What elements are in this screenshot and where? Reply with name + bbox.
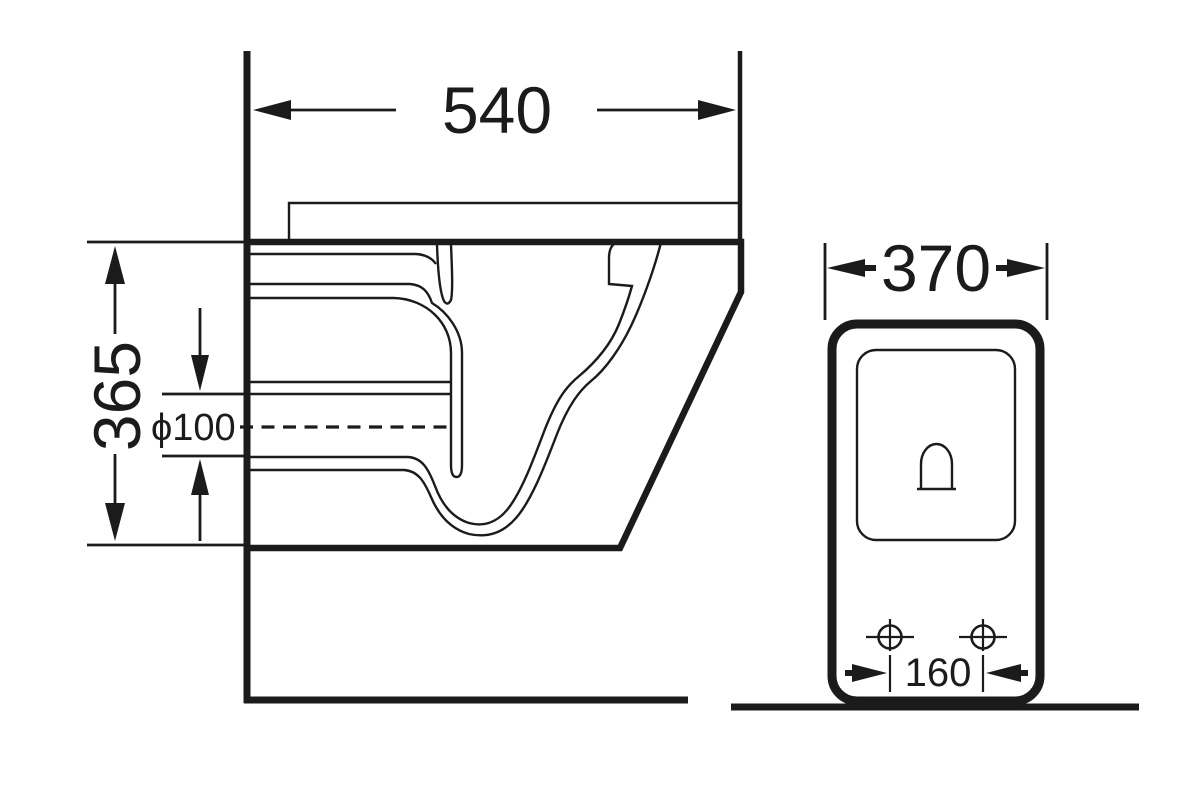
arrow-down-icon bbox=[191, 355, 209, 391]
seat-lid-edge bbox=[289, 203, 739, 241]
dim-label-370: 370 bbox=[881, 231, 991, 305]
arrow-left-icon bbox=[986, 664, 1021, 682]
dimension-370: 370 bbox=[825, 231, 1047, 320]
seat-hinge bbox=[437, 245, 452, 304]
arrow-up-icon bbox=[105, 246, 125, 284]
trap-outer-wall bbox=[250, 243, 661, 535]
arrow-right-icon bbox=[852, 664, 887, 682]
mounting-hole-left bbox=[866, 619, 914, 651]
dim-label-160: 160 bbox=[905, 651, 972, 695]
arrow-left-icon bbox=[827, 259, 865, 277]
dim-label-365: 365 bbox=[80, 341, 154, 451]
dimension-540: 540 bbox=[253, 73, 736, 147]
mounting-hole-right bbox=[959, 619, 1007, 651]
drain-arch bbox=[921, 444, 952, 489]
toilet-technical-drawing: 540 365 ϕ100 bbox=[0, 0, 1200, 800]
arrow-up-icon bbox=[191, 459, 209, 495]
dim-label-phi100: ϕ100 bbox=[151, 407, 236, 449]
bowl-rim-channel bbox=[250, 284, 462, 477]
dim-label-540: 540 bbox=[442, 73, 552, 147]
arrow-right-icon bbox=[1007, 259, 1045, 277]
arrow-left-icon bbox=[253, 100, 291, 120]
drawing-canvas: 540 365 ϕ100 bbox=[0, 0, 1200, 800]
lid-inner-line bbox=[250, 254, 436, 264]
arrow-right-icon bbox=[698, 100, 736, 120]
rear-body-outline bbox=[832, 324, 1040, 701]
dimension-160: 160 bbox=[845, 651, 1028, 695]
dimension-phi100: ϕ100 bbox=[151, 308, 246, 541]
arrow-down-icon bbox=[105, 503, 125, 541]
rear-view bbox=[731, 324, 1139, 707]
side-view bbox=[240, 51, 741, 703]
